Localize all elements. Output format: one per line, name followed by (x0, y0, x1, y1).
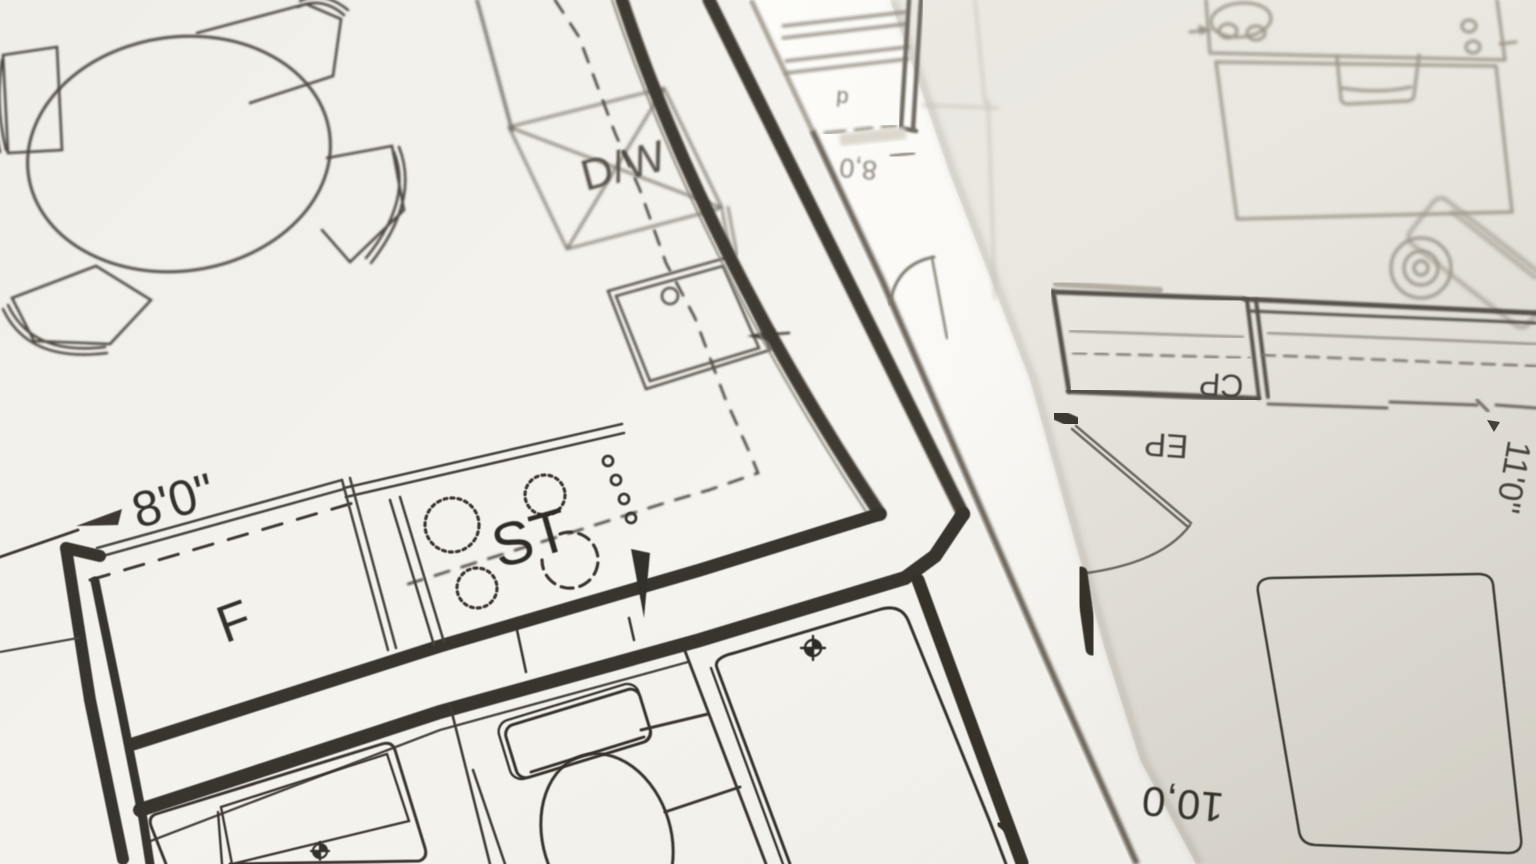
svg-text:10,0: 10,0 (1140, 777, 1226, 831)
svg-text:8,0: 8,0 (838, 152, 878, 185)
svg-text:EP: EP (1143, 425, 1190, 465)
svg-text:CP: CP (1198, 365, 1245, 404)
svg-text:d: d (835, 85, 849, 111)
